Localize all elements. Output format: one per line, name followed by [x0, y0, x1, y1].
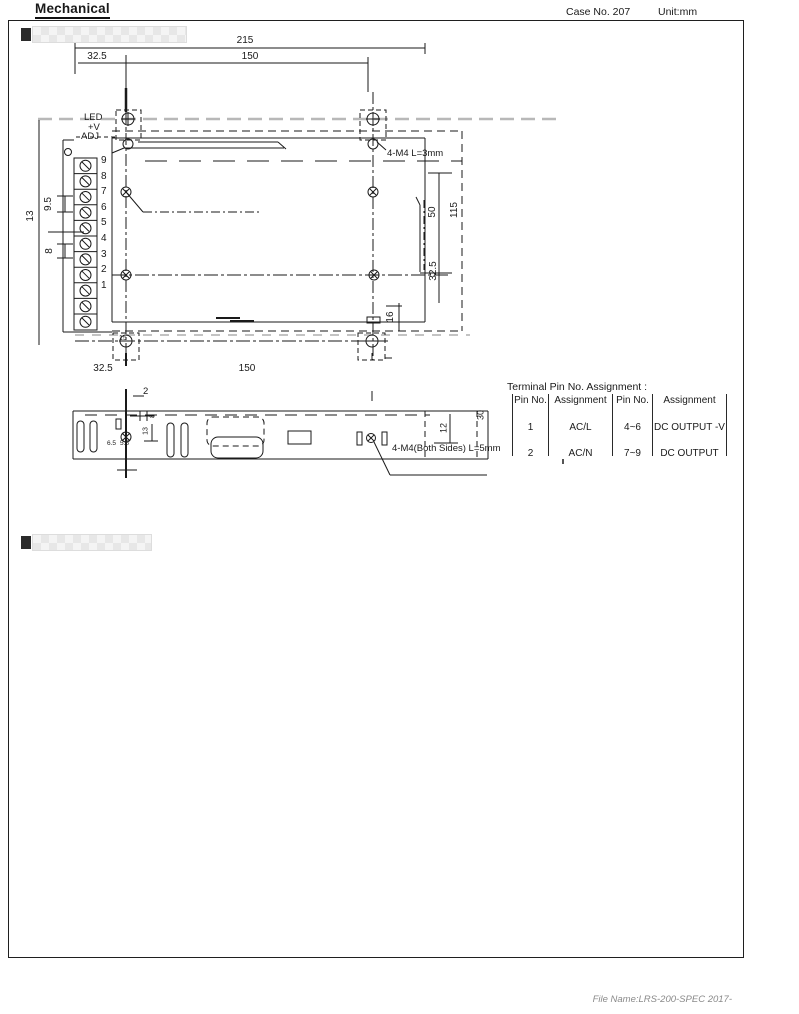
- dim-depth-32-5: 32.5: [429, 261, 439, 280]
- pin-number: 2: [101, 265, 107, 275]
- table-cell: DC OUTPUT: [652, 447, 726, 456]
- table-header: Pin No.: [612, 394, 652, 421]
- top-view: [38, 43, 560, 366]
- dim-bottom-holes: 150: [239, 364, 256, 374]
- pin-number: 8: [101, 172, 107, 182]
- table-header: Assignment: [548, 394, 612, 421]
- table-header: Assignment: [652, 394, 726, 421]
- dim-width-holes: 150: [242, 52, 259, 62]
- adj-label: ADJ: [81, 132, 99, 142]
- dim-side-13: 13: [143, 427, 150, 435]
- dim-depth-115: 115: [450, 202, 460, 218]
- side-view: [73, 389, 488, 478]
- dim-30: 30: [477, 410, 486, 420]
- dim-15: 15: [119, 335, 127, 342]
- dim-side-8: 8: [150, 414, 157, 418]
- dim-bottom-left: 32.5: [93, 364, 112, 374]
- pin-number: 3: [101, 250, 107, 260]
- table-cell: DC OUTPUT -V: [652, 421, 726, 447]
- dim-5-5: 5.5: [120, 441, 129, 448]
- dim-6-5: 6.5: [107, 441, 116, 448]
- led-indicator: [65, 149, 72, 156]
- file-name-footer: File Name:LRS-200-SPEC 2017-: [560, 994, 732, 1005]
- dim-8: 8: [45, 248, 55, 254]
- table-cell: 7~9: [612, 447, 652, 456]
- dim-16: 16: [386, 311, 396, 322]
- table-cell: 1: [513, 421, 548, 447]
- clipped-row-artifact: [562, 459, 564, 464]
- spec-page: Mechanical Case No. 207 Unit:mm: [0, 0, 799, 1014]
- dim-depth-50: 50: [428, 206, 438, 217]
- table-cell: AC/N: [548, 447, 612, 456]
- table-cell: AC/L: [548, 421, 612, 447]
- pin-table-title: Terminal Pin No. Assignment :: [507, 381, 647, 393]
- chassis-screw: [121, 187, 379, 280]
- table-header: Pin No.: [513, 394, 548, 421]
- dim-width-left: 32.5: [87, 52, 106, 62]
- pin-number: 5: [101, 218, 107, 228]
- mounting-hole: [121, 112, 380, 149]
- pin-number: 1: [101, 281, 107, 291]
- pin-number: 6: [101, 203, 107, 213]
- dim-2: 2: [143, 387, 148, 397]
- side-screw-note: 4-M4(Both Sides) L=5mm: [392, 444, 501, 454]
- dim-13: 13: [26, 210, 36, 221]
- dim-width-total: 215: [237, 36, 254, 46]
- pin-number: 9: [101, 156, 107, 166]
- table-cell: 4~6: [612, 421, 652, 447]
- dim-9-5: 9.5: [44, 197, 54, 211]
- pin-number: 7: [101, 187, 107, 197]
- pin-assignment-table: Pin No. Assignment Pin No. Assignment 1 …: [512, 394, 727, 456]
- pin-number: 4: [101, 234, 107, 244]
- top-screw-note: 4-M4 L=3mm: [387, 149, 443, 159]
- table-cell: 2: [513, 447, 548, 456]
- dim-12: 12: [440, 423, 449, 433]
